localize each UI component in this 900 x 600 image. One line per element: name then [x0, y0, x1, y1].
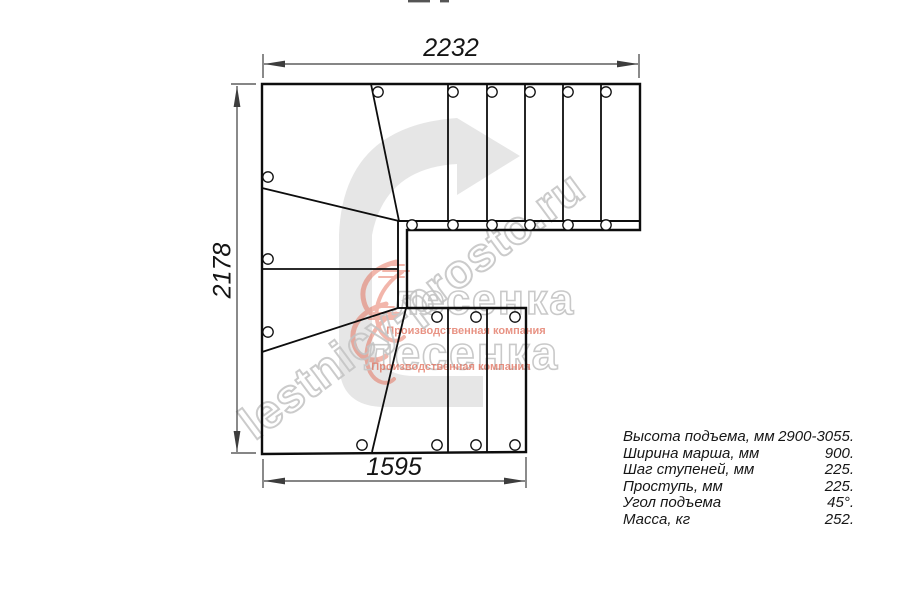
- stair-plan-page: лесенка Производственная компания лесенк…: [0, 0, 900, 600]
- spec-value: 252.: [825, 512, 854, 529]
- winder-tread-lines: [262, 84, 406, 452]
- spec-value: 225.: [825, 479, 854, 496]
- spec-label: Проступь, мм: [623, 479, 723, 496]
- dimension-top-value: 2232: [391, 34, 511, 63]
- spec-label: Масса, кг: [623, 512, 690, 529]
- spec-row-mass: Масса, кг 252.: [623, 512, 854, 529]
- dimension-bottom-value: 1595: [334, 453, 454, 482]
- spec-label: Ширина марша, мм: [623, 446, 759, 463]
- spec-value: 2900-3055.: [778, 429, 854, 446]
- spec-row-tread: Проступь, мм 225.: [623, 479, 854, 496]
- spec-table: Высота подъема, мм 2900-3055. Ширина мар…: [623, 429, 854, 529]
- spec-value: 900.: [825, 446, 854, 463]
- spec-row-height: Высота подъема, мм 2900-3055.: [623, 429, 854, 446]
- tread-lines-upper-flight: [448, 84, 601, 221]
- spec-label: Угол подъема: [623, 495, 721, 512]
- spec-value: 45°.: [827, 495, 854, 512]
- top-edge-artifact: [408, 0, 449, 2]
- stringer-lines: [398, 221, 640, 308]
- spec-value: 225.: [825, 462, 854, 479]
- spec-row-step-pitch: Шаг ступеней, мм 225.: [623, 462, 854, 479]
- tread-lines-lower-flight: [448, 308, 487, 452]
- spec-label: Высота подъема, мм: [623, 429, 775, 446]
- dimension-left-value: 2178: [209, 211, 238, 331]
- spec-label: Шаг ступеней, мм: [623, 462, 754, 479]
- spec-row-angle: Угол подъема 45°.: [623, 495, 854, 512]
- spec-row-march-width: Ширина марша, мм 900.: [623, 446, 854, 463]
